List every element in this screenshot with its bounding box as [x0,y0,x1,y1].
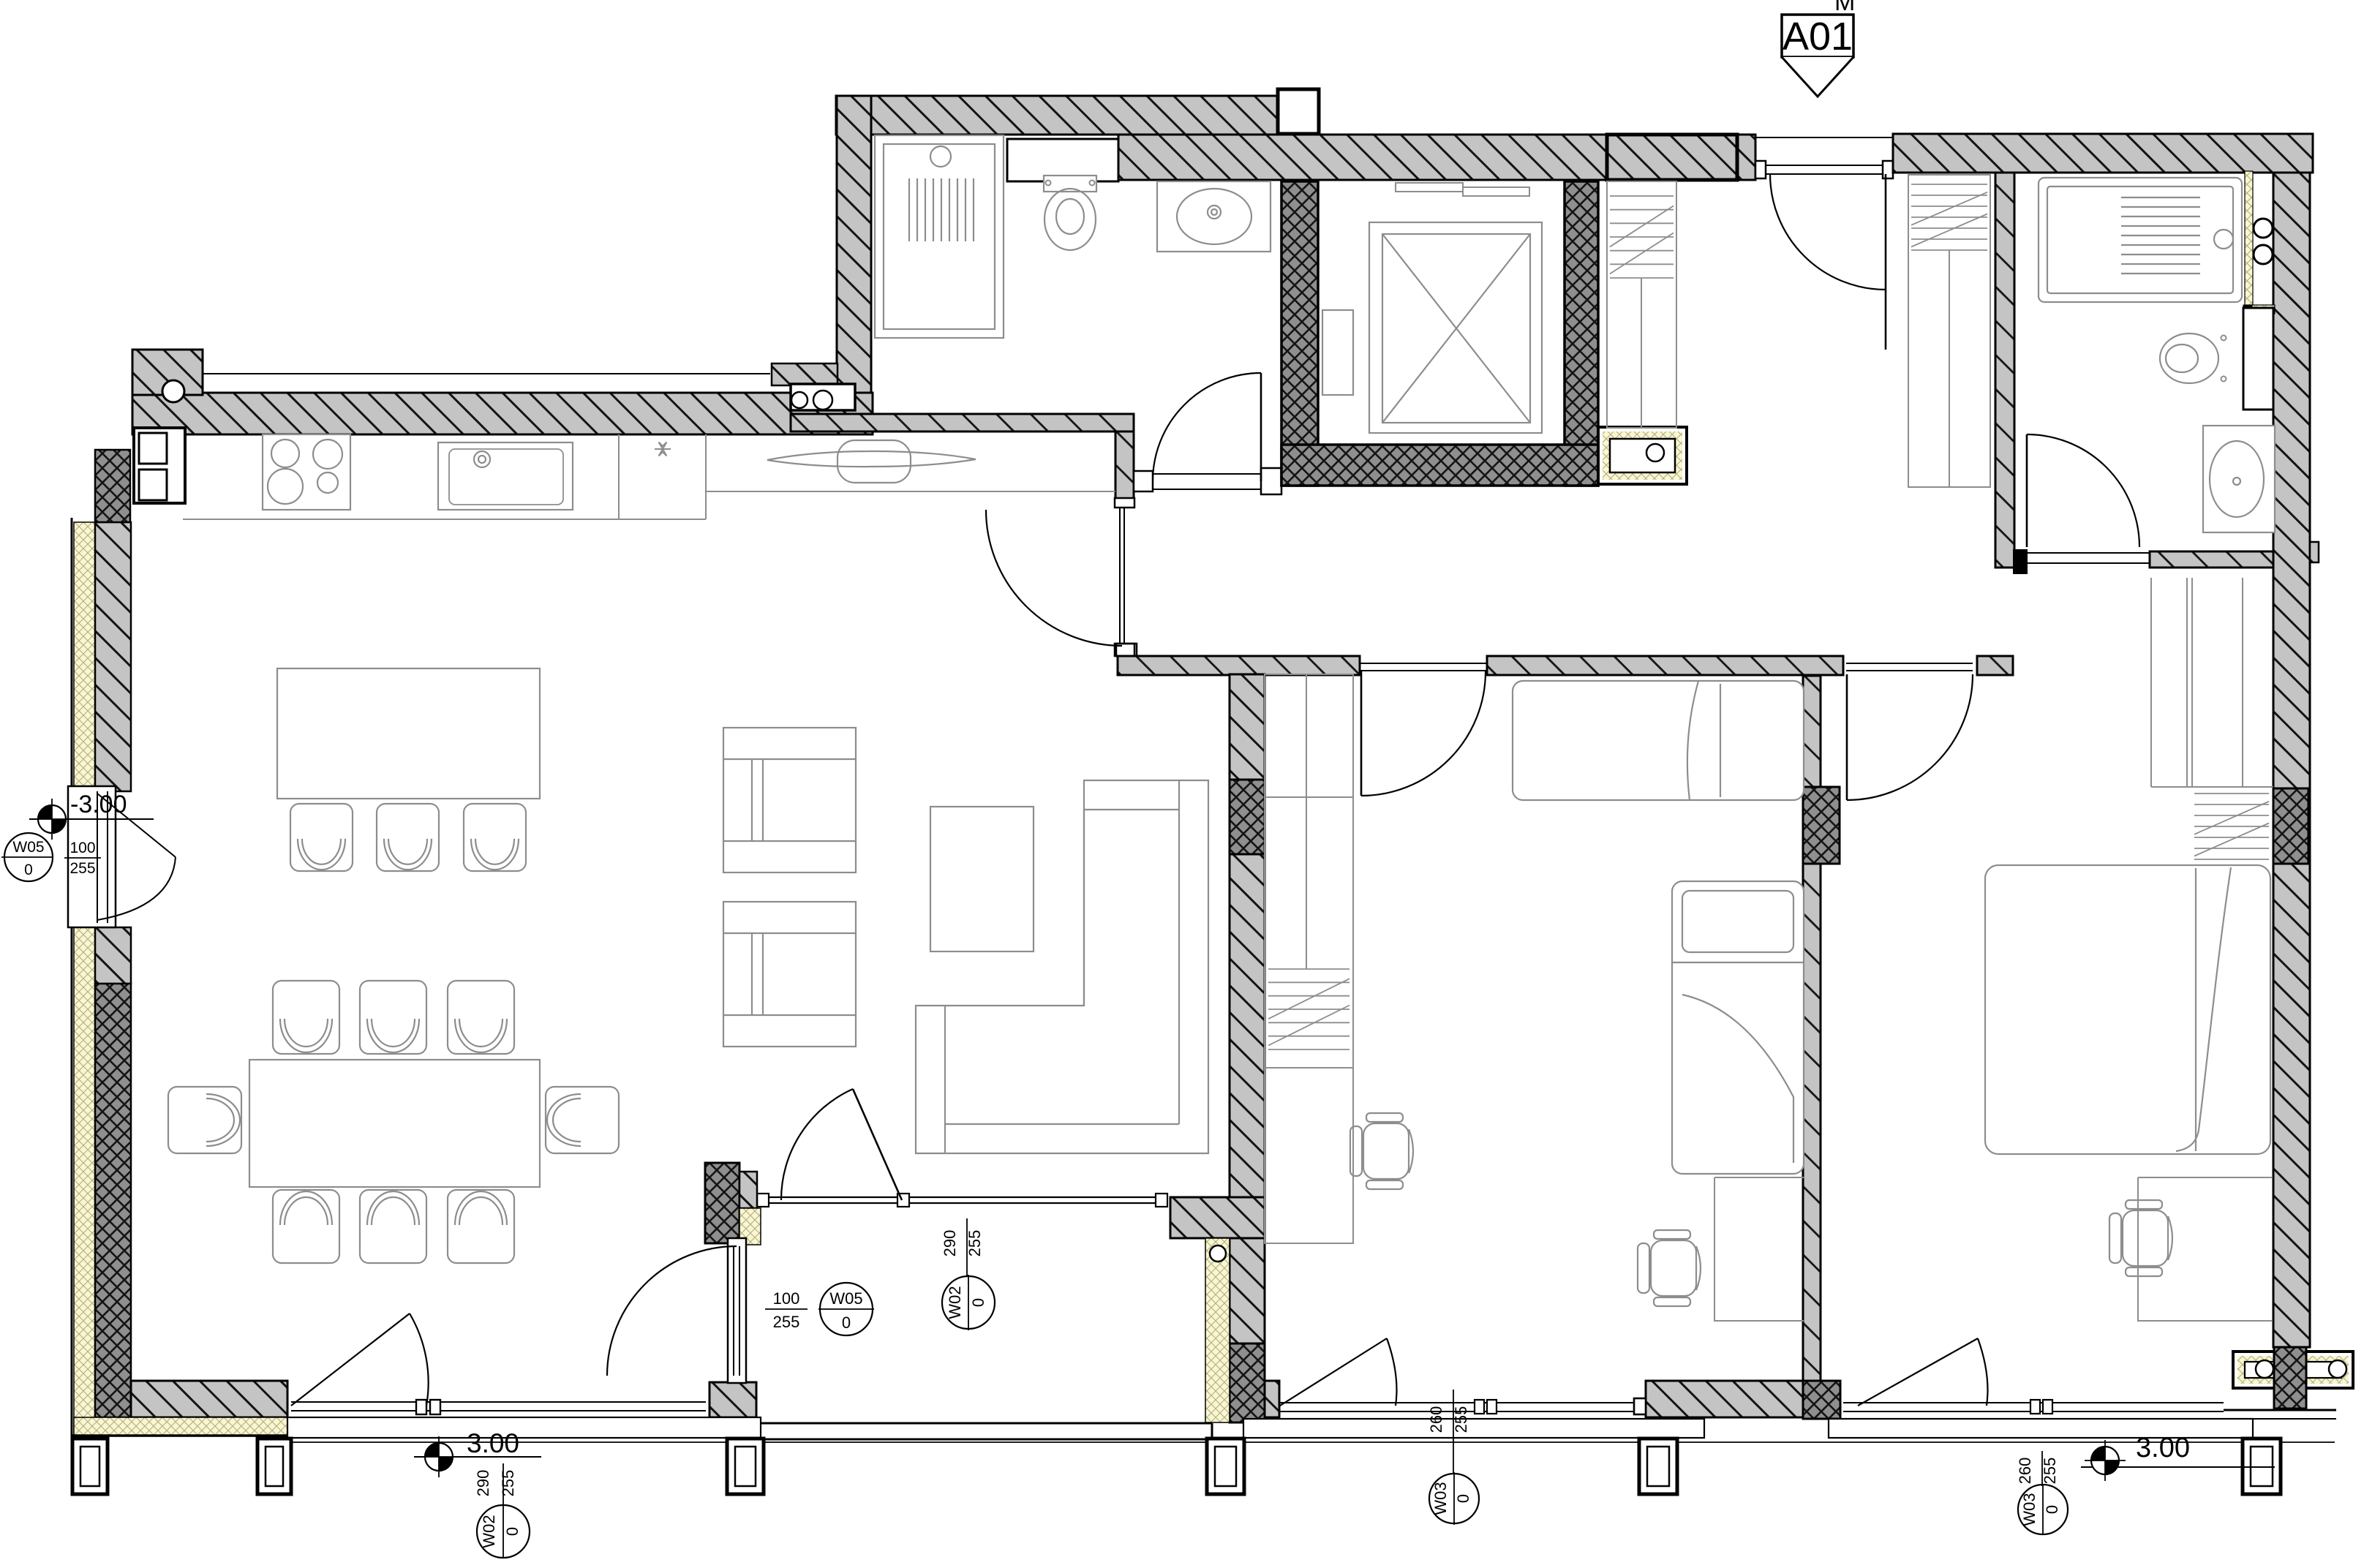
svg-text:255: 255 [1452,1406,1470,1433]
svg-text:0: 0 [969,1298,987,1307]
svg-text:255: 255 [69,860,95,877]
svg-text:W03: W03 [2020,1493,2039,1526]
svg-text:W03: W03 [1431,1482,1450,1515]
svg-text:0: 0 [842,1313,851,1332]
svg-text:255: 255 [2041,1458,2059,1485]
svg-text:W05: W05 [12,839,44,856]
svg-text:260: 260 [1427,1406,1445,1433]
svg-text:260: 260 [2016,1458,2034,1485]
svg-text:W05: W05 [829,1289,862,1308]
svg-text:0: 0 [1454,1494,1472,1503]
svg-text:3.00: 3.00 [467,1428,519,1458]
svg-text:3.00: 3.00 [2136,1433,2190,1463]
svg-text:255: 255 [773,1313,800,1331]
svg-text:W02: W02 [480,1515,498,1548]
svg-text:A01: A01 [1783,15,1853,59]
svg-text:0: 0 [503,1527,522,1536]
svg-text:255: 255 [499,1470,517,1497]
svg-text:100: 100 [773,1289,800,1308]
svg-text:-3.00: -3.00 [70,791,127,818]
svg-text:M: M [1834,0,1855,16]
svg-text:100: 100 [69,840,95,856]
svg-text:290: 290 [941,1230,959,1257]
svg-text:255: 255 [965,1230,984,1257]
svg-text:0: 0 [24,862,33,878]
svg-text:W02: W02 [946,1286,964,1319]
svg-text:290: 290 [474,1470,492,1497]
svg-text:0: 0 [2043,1505,2061,1514]
